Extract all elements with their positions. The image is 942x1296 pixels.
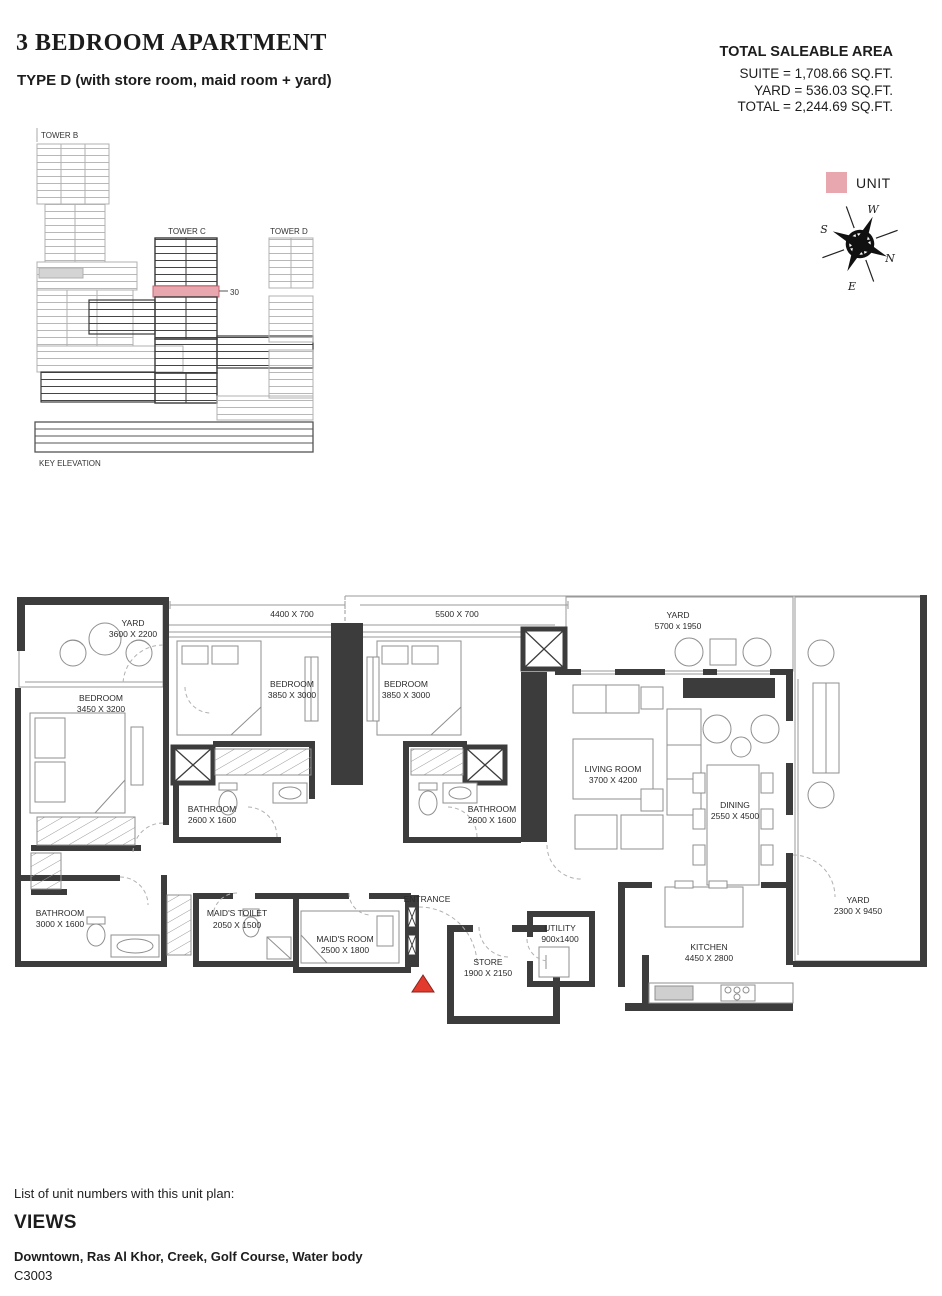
svg-text:2300 X 9450: 2300 X 9450	[834, 906, 882, 916]
svg-text:DINING: DINING	[720, 800, 750, 810]
svg-text:2600 X 1600: 2600 X 1600	[468, 815, 516, 825]
entrance-marker-icon	[412, 975, 434, 992]
floor-marker-label: 30	[230, 288, 239, 297]
views-heading: VIEWS	[14, 1212, 77, 1234]
svg-text:STORE: STORE	[473, 957, 502, 967]
svg-text:UTILITY: UTILITY	[544, 923, 576, 933]
svg-text:BEDROOM: BEDROOM	[270, 679, 314, 689]
svg-text:3600 X 2200: 3600 X 2200	[109, 629, 157, 639]
unit-number: C3003	[14, 1268, 52, 1283]
unit-legend: UNIT	[826, 172, 891, 193]
svg-text:1900 X 2150: 1900 X 2150	[464, 968, 512, 978]
svg-text:YARD: YARD	[667, 610, 690, 620]
svg-text:3850 X 3000: 3850 X 3000	[268, 690, 316, 700]
svg-text:3450 X 3200: 3450 X 3200	[77, 704, 125, 714]
svg-text:BATHROOM: BATHROOM	[468, 804, 516, 814]
svg-text:2550 X 4500: 2550 X 4500	[711, 811, 759, 821]
svg-text:4450 X 2800: 4450 X 2800	[685, 953, 733, 963]
area-total: TOTAL = 2,244.69 SQ.FT.	[720, 99, 893, 116]
compass-south-label: S	[820, 223, 828, 236]
svg-text:5700 x 1950: 5700 x 1950	[655, 621, 702, 631]
svg-text:BEDROOM: BEDROOM	[79, 693, 123, 703]
svg-text:BEDROOM: BEDROOM	[384, 679, 428, 689]
svg-text:LIVING ROOM: LIVING ROOM	[585, 764, 642, 774]
svg-text:2600 X 1600: 2600 X 1600	[188, 815, 236, 825]
key-elevation-diagram: TOWER B TOWER C 30 TOWER D KEY ELEVATION	[17, 128, 317, 473]
page-title: 3 BEDROOM APARTMENT	[16, 30, 327, 57]
highlighted-floor	[153, 286, 219, 297]
svg-text:3000 X 1600: 3000 X 1600	[36, 919, 84, 929]
entrance-label: ENTRANCE	[404, 894, 451, 904]
area-suite: SUITE = 1,708.66 SQ.FT.	[720, 66, 893, 83]
svg-text:MAID'S TOILET: MAID'S TOILET	[207, 908, 267, 918]
floor-plan-drawing: YARD 3600 X 2200 BEDROOM 3450 X 3200 BED…	[15, 595, 930, 1035]
svg-text:BATHROOM: BATHROOM	[36, 908, 84, 918]
area-heading: TOTAL SALEABLE AREA	[720, 44, 893, 60]
tower-d-label: TOWER D	[270, 227, 308, 236]
unit-list-caption: List of unit numbers with this unit plan…	[14, 1186, 234, 1201]
svg-text:3850 X 3000: 3850 X 3000	[382, 690, 430, 700]
svg-text:BATHROOM: BATHROOM	[188, 804, 236, 814]
svg-text:YARD: YARD	[847, 895, 870, 905]
tower-c-label: TOWER C	[168, 227, 206, 236]
page-subtitle: TYPE D (with store room, maid room + yar…	[17, 72, 332, 89]
unit-legend-label: UNIT	[856, 175, 891, 191]
total-saleable-area-block: TOTAL SALEABLE AREA SUITE = 1,708.66 SQ.…	[720, 44, 893, 116]
views-list: Downtown, Ras Al Khor, Creek, Golf Cours…	[14, 1249, 363, 1264]
key-elevation-caption: KEY ELEVATION	[39, 459, 101, 468]
area-yard: YARD = 536.03 SQ.FT.	[720, 83, 893, 100]
svg-text:900x1400: 900x1400	[541, 934, 579, 944]
svg-text:YARD: YARD	[122, 618, 145, 628]
tower-b-label: TOWER B	[41, 131, 78, 140]
svg-text:KITCHEN: KITCHEN	[690, 942, 727, 952]
compass-east-label: E	[847, 280, 856, 293]
svg-text:MAID'S ROOM: MAID'S ROOM	[316, 934, 373, 944]
unit-swatch-icon	[826, 172, 847, 193]
compass-rose-icon: W S N E	[810, 196, 910, 296]
svg-text:2500 X 1800: 2500 X 1800	[321, 945, 369, 955]
compass-west-label: W	[867, 203, 880, 216]
svg-text:3700 X 4200: 3700 X 4200	[589, 775, 637, 785]
compass-north-label: N	[884, 252, 895, 265]
balcony-dim-1: 4400 X 700	[270, 609, 314, 619]
balcony-dim-2: 5500 X 700	[435, 609, 479, 619]
svg-text:2050 X 1500: 2050 X 1500	[213, 920, 261, 930]
